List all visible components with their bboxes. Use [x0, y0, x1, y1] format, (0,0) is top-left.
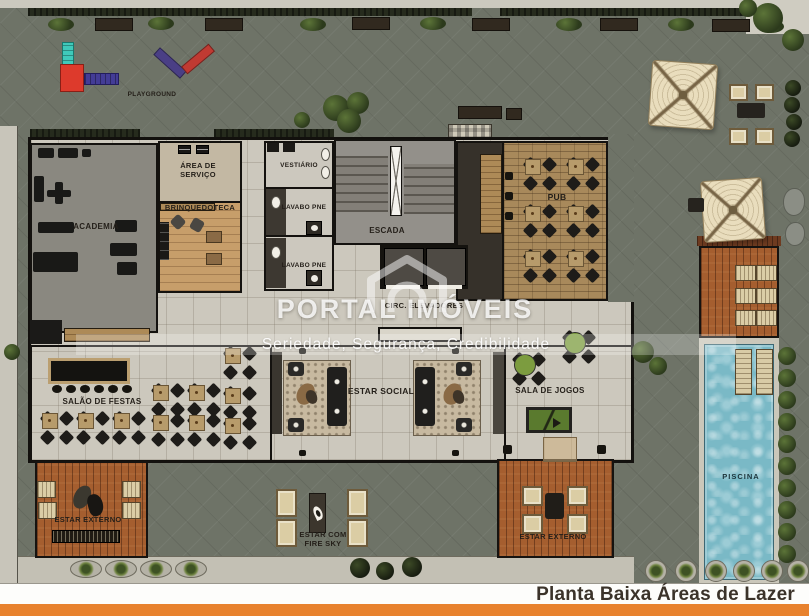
room-brinquedoteca — [158, 201, 242, 293]
elevator-shafts — [380, 245, 468, 289]
stair-divider — [390, 146, 402, 216]
armchair — [288, 418, 304, 432]
washer — [178, 145, 191, 154]
pool-lounger — [756, 349, 773, 395]
playground-cube — [60, 64, 84, 92]
armchair — [456, 418, 472, 432]
parasol — [700, 177, 766, 243]
plan-title: Planta Baixa Áreas de Lazer — [536, 584, 795, 606]
locker — [267, 143, 279, 152]
washer — [196, 145, 209, 154]
stone — [785, 222, 805, 246]
bottom-walkway — [18, 556, 634, 584]
shower — [306, 221, 322, 235]
deck-planter — [52, 530, 120, 543]
kitchenette — [272, 352, 282, 434]
paving-notch — [608, 134, 634, 302]
label-estar-social: ESTAR SOCIAL — [336, 386, 426, 396]
stair-flight — [336, 156, 388, 212]
label-sala-de-jogos: SALA DE JOGOS — [500, 386, 600, 396]
label-lavabo-pne-2: LAVABO PNE — [275, 262, 333, 270]
label-piscina: PISCINA — [711, 472, 771, 481]
room-pub — [502, 141, 608, 301]
lobby-planter-bench — [378, 327, 462, 342]
elevator-car — [384, 248, 424, 286]
stone — [783, 188, 805, 216]
label-estar-externo-1: ESTAR EXTERNO — [48, 515, 128, 524]
elevator-sill — [386, 285, 420, 289]
billiards-table — [526, 407, 572, 433]
playground-bridge — [84, 73, 119, 85]
service-counter — [30, 320, 62, 344]
bar-counter — [480, 154, 502, 234]
sofa — [327, 367, 347, 426]
floor-plan: PLAYGROUND ACADEMIA ÁREA DE SERVIÇO BRIN… — [0, 0, 809, 616]
label-pub: PUB — [532, 192, 582, 202]
elevator-car — [426, 248, 466, 286]
accent-bar — [0, 604, 809, 616]
label-circ-elevadores: CIRC. ELEVADORES — [374, 301, 474, 310]
banquet-table — [48, 358, 130, 384]
label-escada: ESCADA — [352, 226, 422, 236]
kids-table — [206, 253, 222, 265]
hedge-strip — [30, 129, 140, 137]
label-estar-com-fire-sky: ESTAR COM FIRE SKY — [294, 530, 352, 548]
elevator-sill — [428, 285, 462, 289]
top-walkway — [0, 0, 809, 8]
label-estar-externo-2: ESTAR EXTERNO — [508, 532, 598, 541]
bench — [458, 106, 502, 119]
kids-table — [206, 231, 222, 243]
side-table — [688, 198, 704, 212]
corner-patio — [746, 0, 809, 34]
label-academia: ACADEMIA — [58, 222, 134, 232]
fire-pit — [309, 493, 326, 533]
hedge-strip — [214, 129, 334, 137]
pool-deck — [699, 246, 779, 338]
armchair — [456, 362, 472, 376]
parasol — [648, 60, 718, 130]
flame-icon — [311, 505, 324, 521]
label-brinquedoteca: BRINQUEDOTECA — [159, 203, 241, 212]
sideboard — [64, 328, 150, 342]
label-vestiario: VESTIÁRIO — [269, 162, 329, 170]
shower — [306, 270, 322, 286]
side-walkway — [0, 126, 18, 584]
toy-shelf — [160, 222, 169, 260]
pool-lounger — [735, 349, 752, 395]
hedge-strip — [500, 8, 746, 16]
patio-table — [737, 103, 765, 118]
room-academia — [30, 143, 158, 333]
floor-mat — [543, 437, 577, 462]
label-playground: PLAYGROUND — [112, 91, 192, 99]
label-lavabo-pne-1: LAVABO PNE — [275, 204, 333, 212]
label-salao-de-festas: SALÃO DE FESTAS — [52, 397, 152, 407]
label-area-de-servico: ÁREA DE SERVIÇO — [168, 161, 228, 179]
toilet — [321, 148, 330, 161]
caption-strip: Planta Baixa Áreas de Lazer — [0, 583, 809, 604]
bench — [506, 108, 522, 120]
locker — [283, 143, 295, 152]
fire-table — [545, 493, 564, 519]
toilet — [271, 246, 281, 259]
armchair — [288, 362, 304, 376]
stair-flight — [404, 164, 454, 214]
sofa — [415, 367, 435, 426]
hedge-strip — [28, 8, 472, 16]
